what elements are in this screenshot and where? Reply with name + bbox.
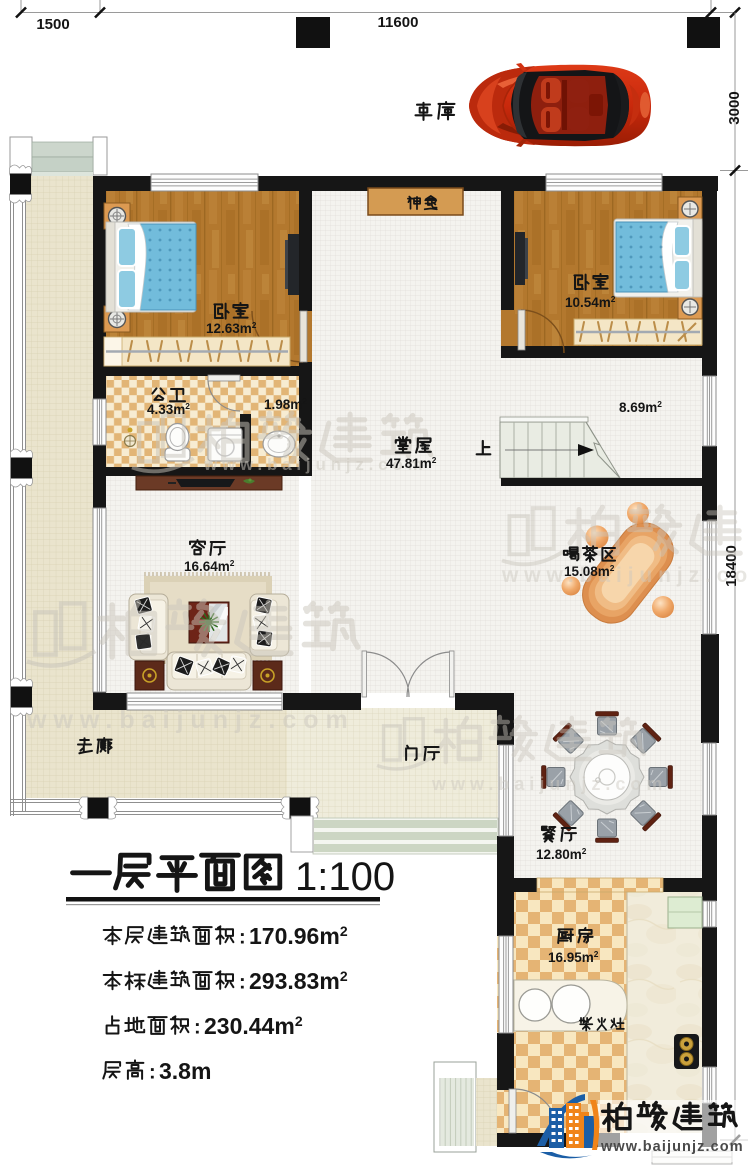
svg-text:1:100: 1:100 bbox=[295, 855, 395, 899]
svg-text:www.baijunjz.com: www.baijunjz.com bbox=[501, 564, 750, 587]
svg-text:293.83m2: 293.83m2 bbox=[249, 968, 348, 994]
svg-text:11600: 11600 bbox=[378, 14, 419, 31]
svg-text:12.80m2: 12.80m2 bbox=[536, 846, 587, 862]
svg-text:170.96m2: 170.96m2 bbox=[249, 923, 348, 949]
svg-text:47.81m2: 47.81m2 bbox=[386, 455, 437, 471]
svg-text:1.98m2: 1.98m2 bbox=[264, 396, 307, 412]
svg-text:3000: 3000 bbox=[726, 91, 743, 124]
svg-text::: : bbox=[149, 1062, 156, 1084]
svg-text::: : bbox=[194, 1017, 201, 1039]
svg-text:www.baijunjz.com: www.baijunjz.com bbox=[431, 774, 667, 794]
svg-text:1500: 1500 bbox=[36, 16, 69, 33]
svg-text:12.63m2: 12.63m2 bbox=[206, 320, 257, 336]
svg-text::: : bbox=[239, 927, 246, 949]
svg-text:www.baijunjz.com: www.baijunjz.com bbox=[600, 1139, 744, 1155]
svg-text:3.8m: 3.8m bbox=[159, 1058, 211, 1084]
svg-text:16.64m2: 16.64m2 bbox=[184, 558, 235, 574]
svg-text:230.44m2: 230.44m2 bbox=[204, 1013, 303, 1039]
svg-text:8.69m2: 8.69m2 bbox=[619, 399, 662, 415]
svg-text::: : bbox=[239, 972, 246, 994]
svg-text:16.95m2: 16.95m2 bbox=[548, 949, 599, 965]
svg-text:10.54m2: 10.54m2 bbox=[565, 294, 616, 310]
svg-text:www.baijunjz.com: www.baijunjz.com bbox=[26, 706, 355, 734]
svg-text:4.33m2: 4.33m2 bbox=[147, 401, 190, 417]
svg-text:15.08m2: 15.08m2 bbox=[564, 563, 615, 579]
